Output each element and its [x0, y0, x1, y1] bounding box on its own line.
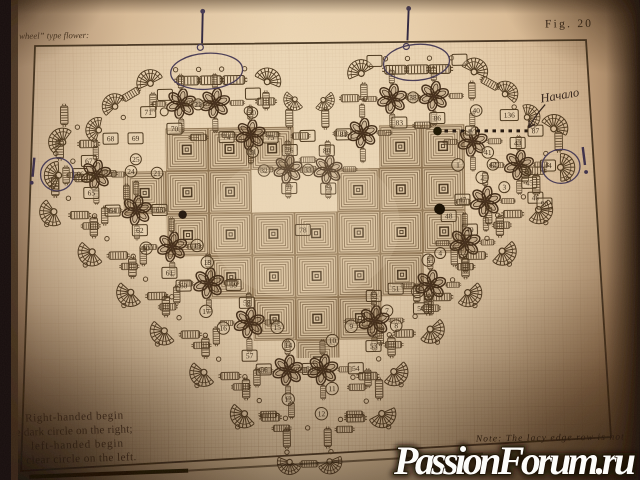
svg-text:PassionForum.ru: PassionForum.ru: [393, 438, 636, 480]
